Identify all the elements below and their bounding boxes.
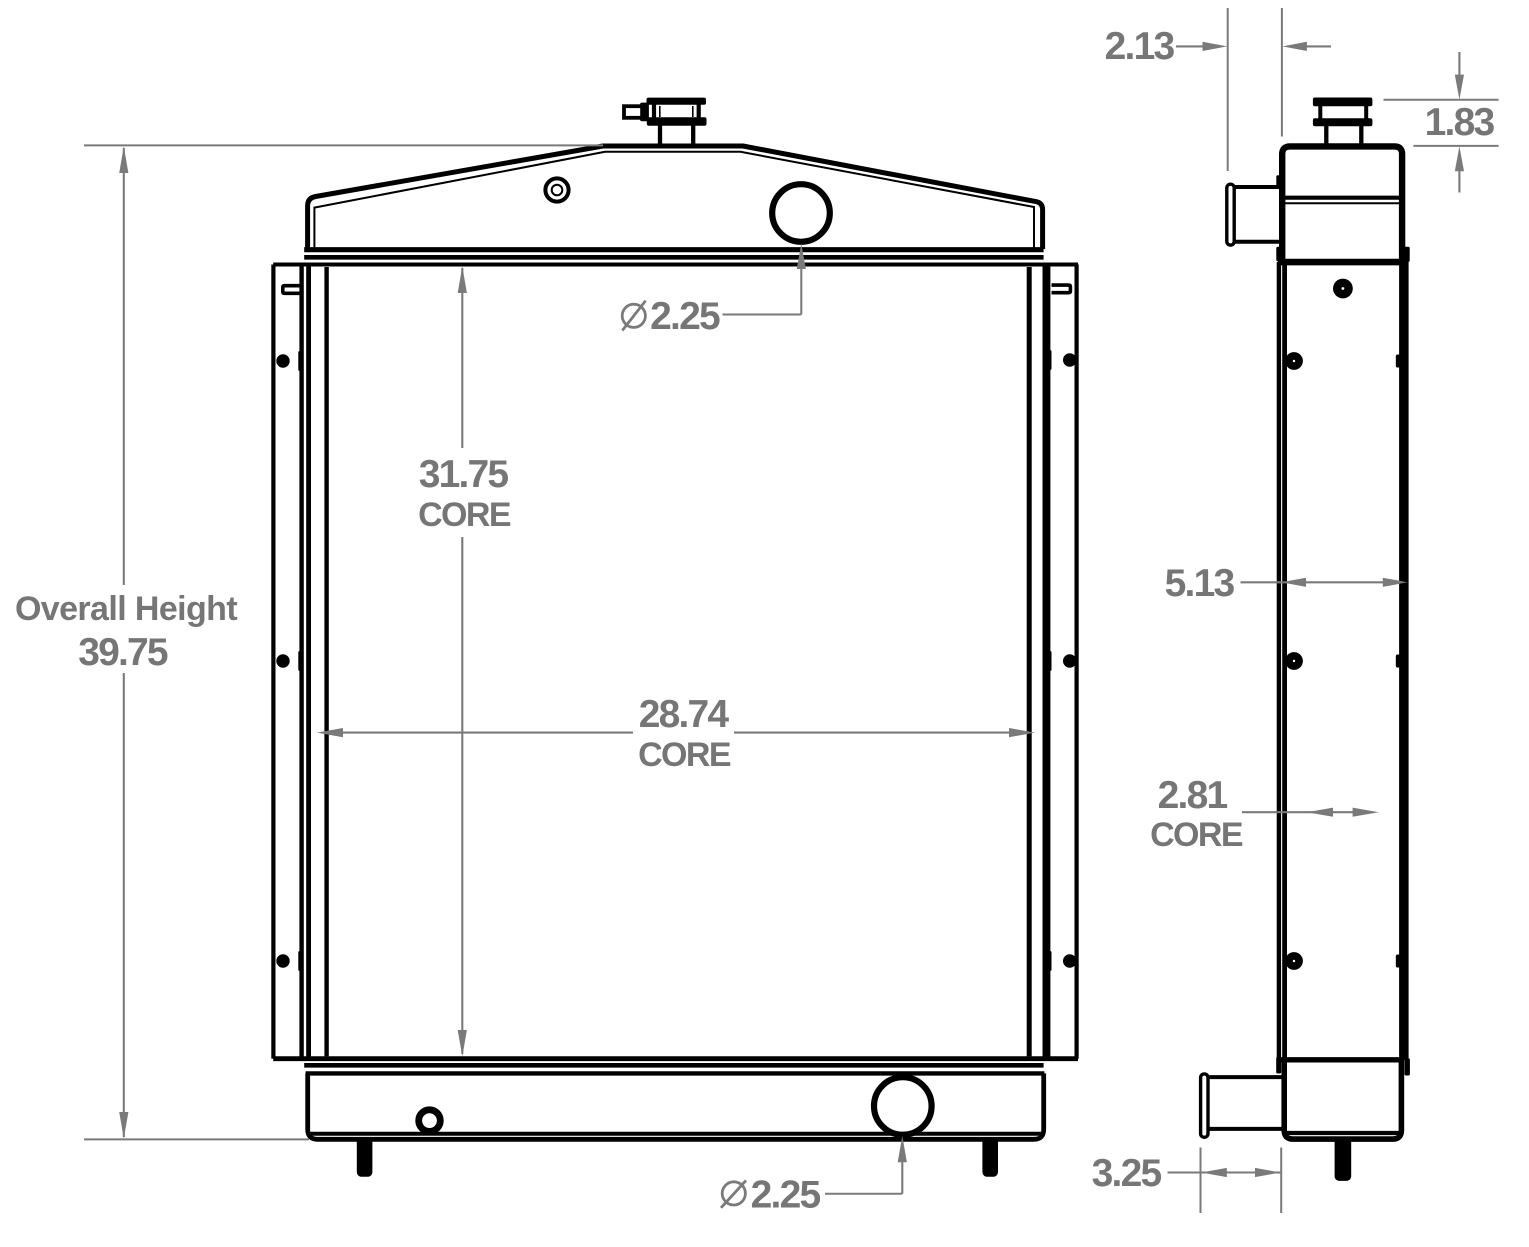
- svg-text:31.75: 31.75: [419, 453, 509, 496]
- svg-text:2.25: 2.25: [751, 1173, 821, 1216]
- svg-text:CORE: CORE: [1150, 816, 1243, 854]
- svg-text:28.74: 28.74: [639, 693, 730, 736]
- svg-text:1.83: 1.83: [1425, 101, 1495, 144]
- svg-text:CORE: CORE: [638, 736, 731, 774]
- svg-text:5.13: 5.13: [1165, 562, 1235, 605]
- svg-text:39.75: 39.75: [78, 631, 168, 674]
- svg-text:2.13: 2.13: [1105, 25, 1175, 68]
- svg-text:3.25: 3.25: [1092, 1152, 1162, 1195]
- svg-text:2.81: 2.81: [1158, 774, 1228, 817]
- svg-text:Overall Height: Overall Height: [15, 590, 237, 628]
- svg-text:CORE: CORE: [418, 496, 511, 534]
- svg-text:2.25: 2.25: [650, 295, 720, 338]
